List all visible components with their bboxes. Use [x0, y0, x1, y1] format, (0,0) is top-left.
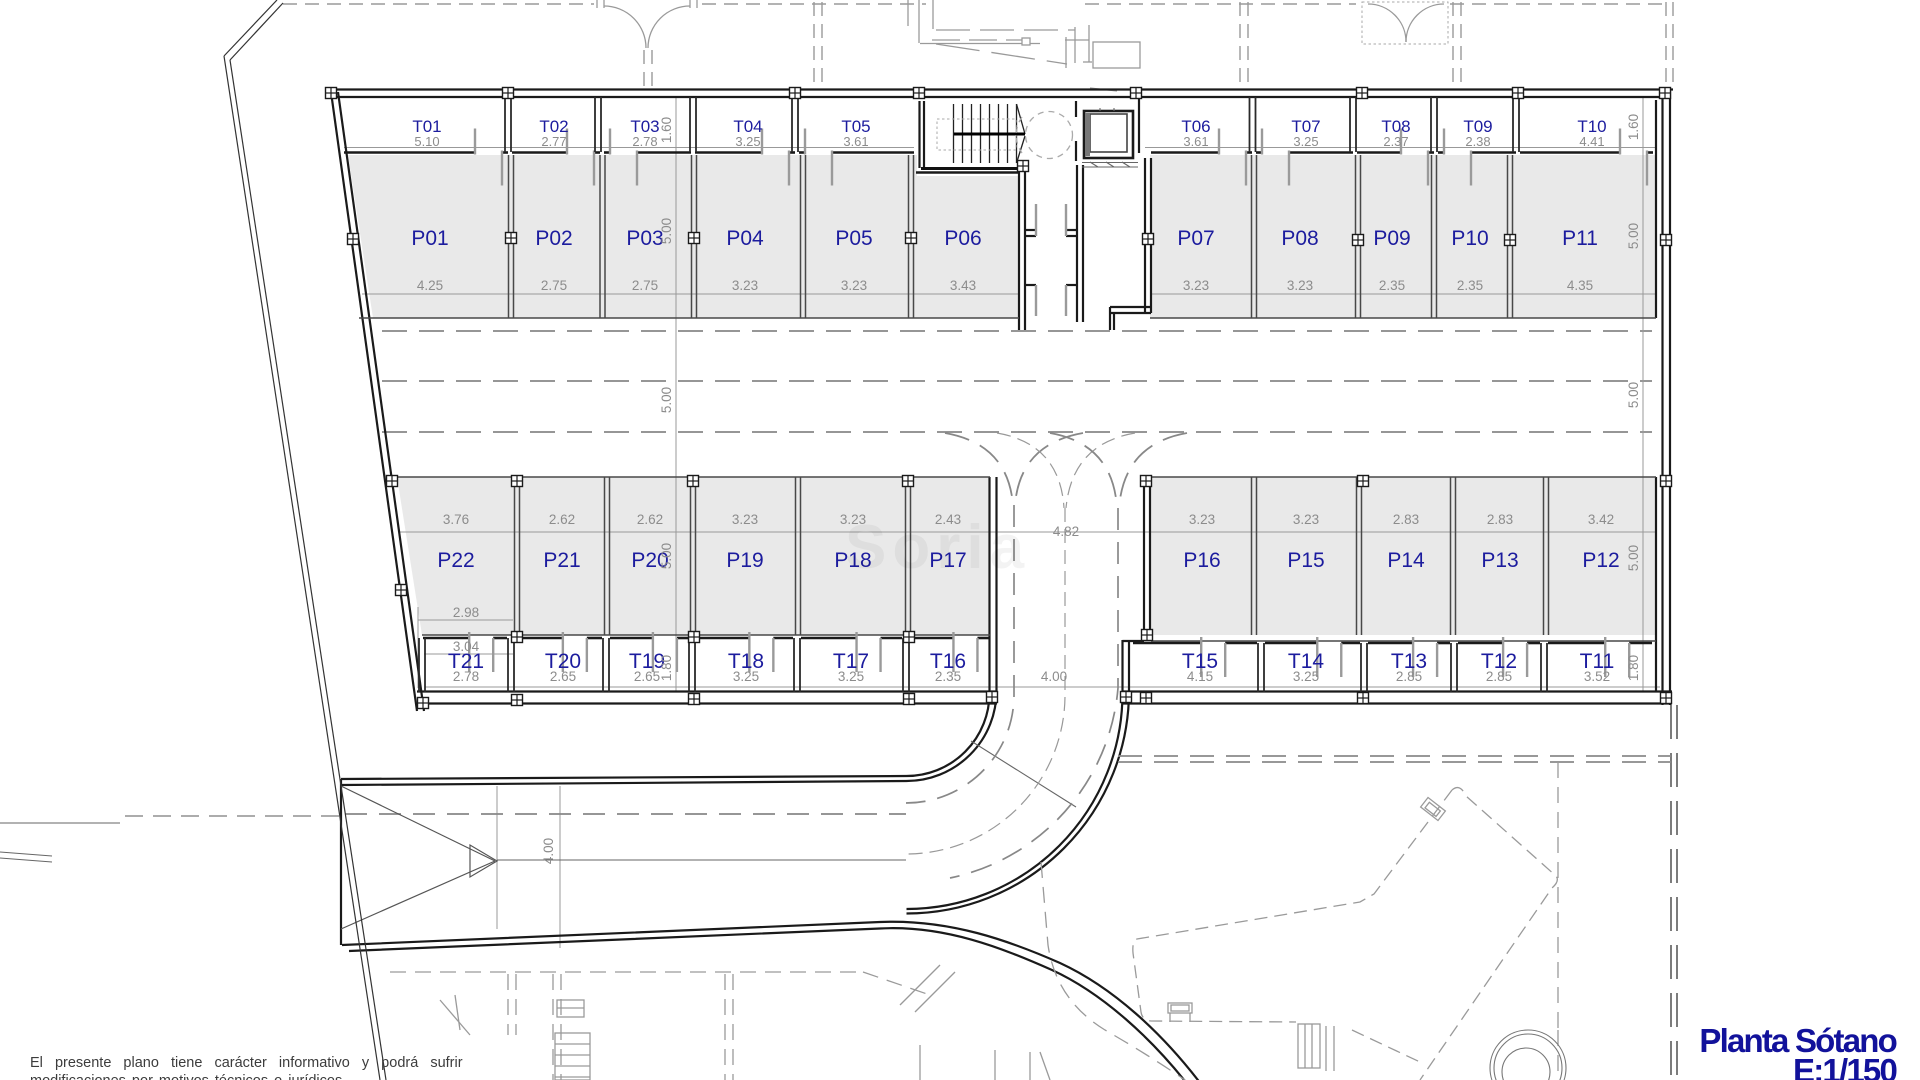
svg-text:3.43: 3.43 [950, 278, 976, 293]
svg-text:4.82: 4.82 [1053, 524, 1079, 539]
svg-text:3.25: 3.25 [733, 669, 759, 684]
svg-text:2.65: 2.65 [550, 669, 576, 684]
svg-text:4.15: 4.15 [1187, 669, 1213, 684]
svg-text:Soria: Soria [845, 513, 1030, 582]
svg-text:3.23: 3.23 [1183, 278, 1209, 293]
svg-text:P05: P05 [835, 227, 872, 250]
svg-text:2.35: 2.35 [935, 669, 961, 684]
svg-text:P09: P09 [1373, 227, 1410, 250]
svg-text:3.42: 3.42 [1588, 512, 1614, 527]
svg-text:P06: P06 [944, 227, 981, 250]
svg-text:P19: P19 [726, 549, 763, 572]
svg-text:3.23: 3.23 [1189, 512, 1215, 527]
svg-text:3.04: 3.04 [453, 639, 480, 654]
svg-text:E:1/150: E:1/150 [1793, 1052, 1896, 1080]
svg-text:2.85: 2.85 [1396, 669, 1422, 684]
svg-text:2.83: 2.83 [1487, 512, 1513, 527]
svg-text:4.25: 4.25 [417, 278, 443, 293]
svg-text:3.23: 3.23 [732, 278, 758, 293]
svg-text:El presente plano tiene ca: El presente plano tiene carácter informa… [30, 1055, 463, 1071]
svg-text:3.23: 3.23 [732, 512, 758, 527]
svg-text:3.61: 3.61 [843, 134, 868, 149]
svg-text:P10: P10 [1451, 227, 1488, 250]
svg-text:2.62: 2.62 [637, 512, 663, 527]
svg-text:2.75: 2.75 [541, 278, 567, 293]
svg-text:2.85: 2.85 [1486, 669, 1512, 684]
svg-text:1.80: 1.80 [1626, 655, 1641, 681]
svg-text:P02: P02 [535, 227, 572, 250]
svg-text:P15: P15 [1287, 549, 1324, 572]
svg-text:4.41: 4.41 [1579, 134, 1604, 149]
svg-text:3.25: 3.25 [1293, 134, 1318, 149]
svg-text:5.00: 5.00 [1626, 382, 1641, 408]
svg-text:P21: P21 [543, 549, 580, 572]
svg-text:3.25: 3.25 [838, 669, 864, 684]
svg-text:4.35: 4.35 [1567, 278, 1593, 293]
svg-text:P07: P07 [1177, 227, 1214, 250]
svg-text:2.35: 2.35 [1457, 278, 1483, 293]
svg-text:1.60: 1.60 [1626, 114, 1641, 140]
svg-text:P16: P16 [1183, 549, 1220, 572]
svg-text:4.00: 4.00 [1041, 669, 1067, 684]
svg-text:2.98: 2.98 [453, 605, 479, 620]
svg-text:P13: P13 [1481, 549, 1518, 572]
svg-text:P22: P22 [437, 549, 474, 572]
svg-text:3.61: 3.61 [1183, 134, 1208, 149]
svg-text:P08: P08 [1281, 227, 1318, 250]
svg-text:3.52: 3.52 [1584, 669, 1610, 684]
svg-text:modificaciones por motivos téc: modificaciones por motivos técnicos o ju… [30, 1073, 346, 1080]
svg-text:5.00: 5.00 [659, 543, 674, 569]
svg-text:3.25: 3.25 [1293, 669, 1319, 684]
svg-text:P04: P04 [726, 227, 764, 250]
svg-text:5.00: 5.00 [659, 387, 674, 413]
svg-text:2.75: 2.75 [632, 278, 658, 293]
svg-text:3.23: 3.23 [1293, 512, 1319, 527]
svg-text:P12: P12 [1582, 549, 1619, 572]
svg-text:2.62: 2.62 [549, 512, 575, 527]
svg-text:5.10: 5.10 [414, 134, 439, 149]
svg-text:3.23: 3.23 [841, 278, 867, 293]
svg-text:3.76: 3.76 [443, 512, 469, 527]
svg-text:4.00: 4.00 [541, 838, 556, 864]
svg-text:2.77: 2.77 [541, 134, 566, 149]
svg-text:5.00: 5.00 [1626, 545, 1641, 571]
svg-text:1.60: 1.60 [659, 117, 674, 143]
svg-text:2.65: 2.65 [634, 669, 660, 684]
svg-text:5.00: 5.00 [1626, 223, 1641, 249]
svg-text:2.83: 2.83 [1393, 512, 1419, 527]
svg-text:2.37: 2.37 [1383, 134, 1408, 149]
svg-text:3.25: 3.25 [735, 134, 760, 149]
svg-text:2.38: 2.38 [1465, 134, 1490, 149]
svg-text:1.80: 1.80 [659, 655, 674, 681]
svg-text:P14: P14 [1387, 549, 1425, 572]
svg-text:5.00: 5.00 [659, 218, 674, 244]
svg-text:P01: P01 [411, 227, 448, 250]
svg-text:2.35: 2.35 [1379, 278, 1405, 293]
svg-text:2.78: 2.78 [632, 134, 657, 149]
svg-text:P11: P11 [1562, 227, 1598, 250]
svg-text:2.78: 2.78 [453, 669, 479, 684]
svg-text:3.23: 3.23 [1287, 278, 1313, 293]
